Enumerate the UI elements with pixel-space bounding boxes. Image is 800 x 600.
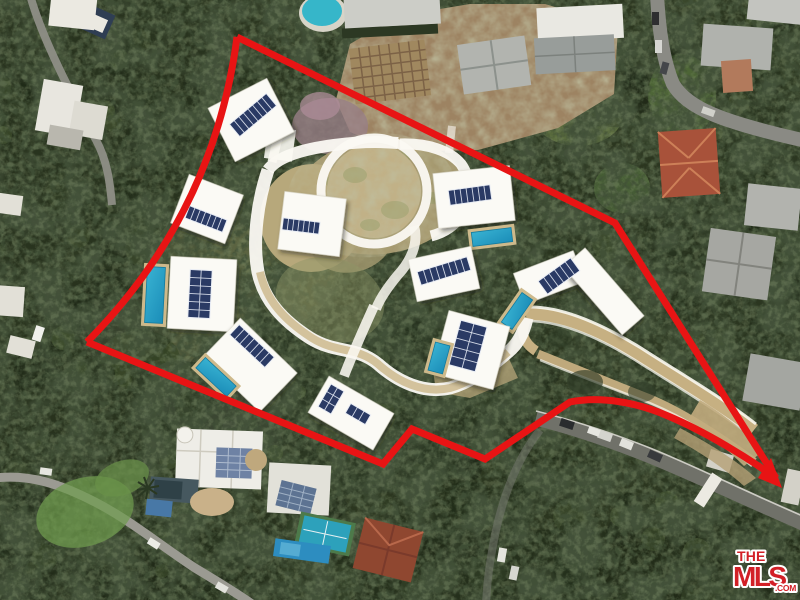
svg-text:.COM: .COM xyxy=(775,583,796,593)
